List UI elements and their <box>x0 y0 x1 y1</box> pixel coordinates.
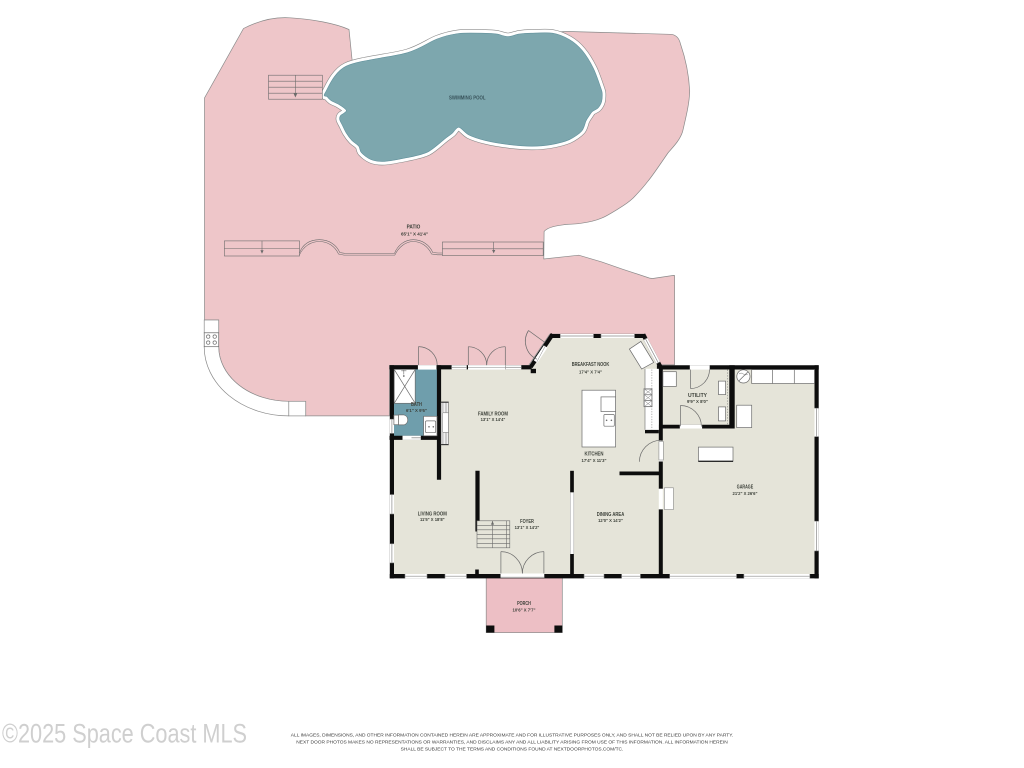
svg-text:17'4" X 11'3": 17'4" X 11'3" <box>582 458 607 463</box>
svg-text:©2025 Space Coast MLS: ©2025 Space Coast MLS <box>2 719 247 749</box>
svg-text:PORCH: PORCH <box>517 601 531 607</box>
svg-text:BATH: BATH <box>411 402 422 408</box>
svg-text:9'9" X 8'0": 9'9" X 8'0" <box>687 399 708 404</box>
svg-text:65'1" X 41'4": 65'1" X 41'4" <box>401 232 428 237</box>
svg-text:GARAGE: GARAGE <box>737 485 754 491</box>
svg-text:17'4" X 7'4": 17'4" X 7'4" <box>579 369 602 374</box>
svg-text:21'2" X 26'6": 21'2" X 26'6" <box>733 491 758 496</box>
svg-text:13'1" X 14'2": 13'1" X 14'2" <box>515 525 540 530</box>
svg-text:KITCHEN: KITCHEN <box>585 452 604 458</box>
svg-text:10'6" X 7'7": 10'6" X 7'7" <box>513 608 536 613</box>
svg-text:SWIMMING POOL: SWIMMING POOL <box>449 96 486 102</box>
svg-text:13'1" X 14'4": 13'1" X 14'4" <box>481 417 506 422</box>
svg-text:PATIO: PATIO <box>407 224 421 230</box>
svg-text:BREAKFAST NOOK: BREAKFAST NOOK <box>572 362 610 368</box>
svg-text:SHALL BE SUBJECT TO THE TERMS: SHALL BE SUBJECT TO THE TERMS AND CONDIT… <box>401 747 624 753</box>
svg-text:NEXT DOOR PHOTOS MAKES NO REPR: NEXT DOOR PHOTOS MAKES NO REPRESENTATION… <box>296 740 728 746</box>
svg-text:6'1" X 9'6": 6'1" X 9'6" <box>406 408 427 413</box>
svg-text:12'0" X 14'2": 12'0" X 14'2" <box>598 518 623 523</box>
svg-text:11'5" X 18'8": 11'5" X 18'8" <box>420 517 445 522</box>
svg-text:ALL IMAGES, DIMENSIONS, AND OT: ALL IMAGES, DIMENSIONS, AND OTHER INFORM… <box>291 733 733 739</box>
